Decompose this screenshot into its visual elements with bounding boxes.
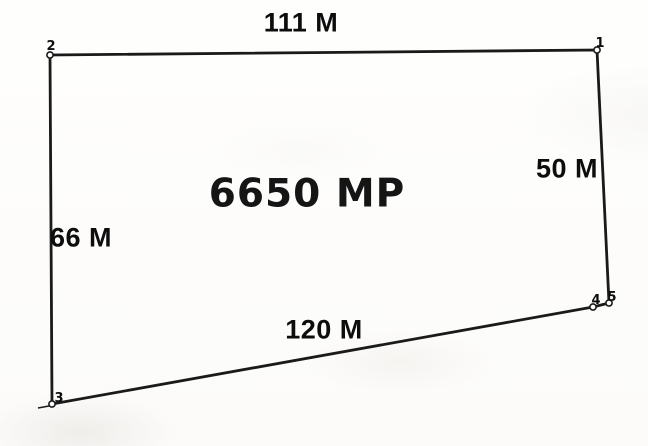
vertex-number-5: 5 xyxy=(607,290,616,305)
left-side-length-label: 66 M xyxy=(50,223,112,254)
survey-sheet: 21543 111 M 50 M 66 M 120 M 6650 MP xyxy=(0,0,648,446)
vertex-number-3: 3 xyxy=(54,391,63,406)
bottom-side-length-label: 120 M xyxy=(285,315,363,346)
right-side-length-label: 50 M xyxy=(536,154,598,185)
vertex-number-1: 1 xyxy=(595,36,604,51)
corner-3-tick xyxy=(38,406,49,408)
vertex-number-2: 2 xyxy=(46,39,55,54)
area-label: 6650 MP xyxy=(209,172,406,217)
top-side-length-label: 111 M xyxy=(264,8,339,39)
vertex-number-4: 4 xyxy=(591,293,600,308)
plot-boundary xyxy=(50,50,609,404)
